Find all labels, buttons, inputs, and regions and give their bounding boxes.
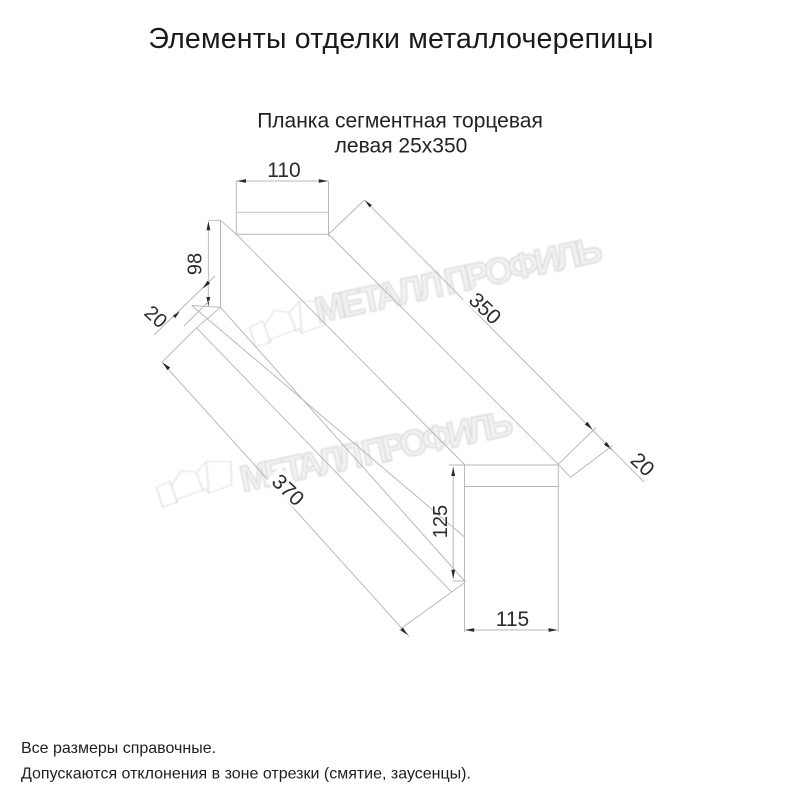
svg-text:левая 25х350: левая 25х350 xyxy=(335,135,468,158)
svg-text:125: 125 xyxy=(430,505,452,538)
svg-text:Планка сегментная торцевая: Планка сегментная торцевая xyxy=(257,110,543,133)
svg-text:Элементы отделки металлочерепи: Элементы отделки металлочерепицы xyxy=(148,23,653,55)
svg-text:Все размеры справочные.: Все размеры справочные. xyxy=(21,740,216,757)
svg-text:115: 115 xyxy=(496,608,529,631)
svg-text:110: 110 xyxy=(267,159,300,182)
svg-text:98: 98 xyxy=(185,253,207,275)
svg-text:Допускаются отклонения в зоне: Допускаются отклонения в зоне отрезки (с… xyxy=(21,766,471,783)
